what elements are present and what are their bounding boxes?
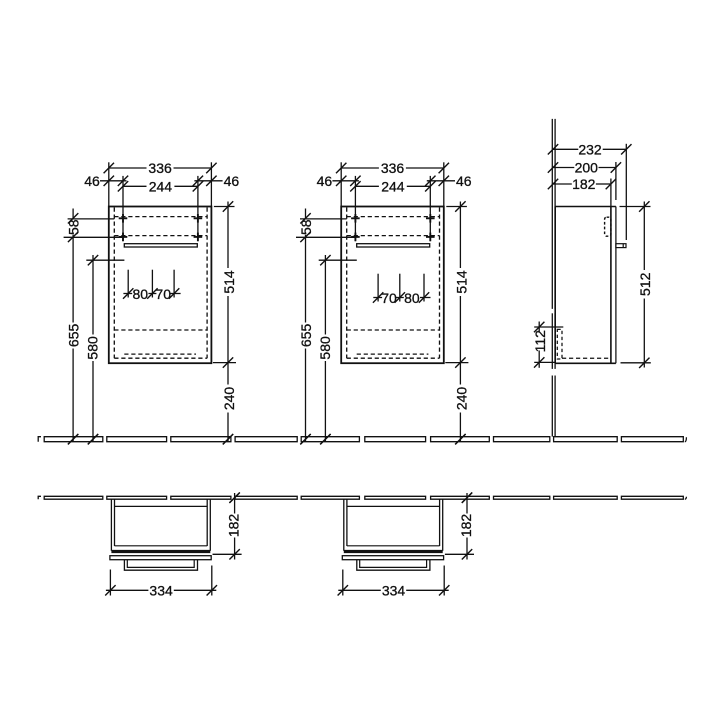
svg-text:655: 655 [66, 324, 82, 348]
svg-text:46: 46 [456, 173, 472, 189]
svg-text:70: 70 [381, 290, 397, 306]
svg-text:182: 182 [226, 514, 242, 538]
svg-text:46: 46 [317, 173, 333, 189]
svg-text:240: 240 [221, 387, 237, 411]
svg-text:514: 514 [453, 270, 469, 294]
svg-text:244: 244 [149, 178, 173, 194]
svg-text:58: 58 [298, 219, 314, 235]
svg-text:514: 514 [221, 270, 237, 294]
svg-text:655: 655 [298, 324, 314, 348]
svg-text:200: 200 [575, 160, 599, 176]
svg-text:80: 80 [404, 290, 420, 306]
svg-text:334: 334 [149, 582, 173, 598]
svg-text:334: 334 [382, 582, 406, 598]
svg-text:46: 46 [224, 173, 240, 189]
svg-text:46: 46 [84, 173, 100, 189]
svg-text:580: 580 [317, 336, 333, 360]
svg-text:58: 58 [66, 219, 82, 235]
svg-text:182: 182 [458, 514, 474, 538]
svg-text:232: 232 [578, 141, 602, 157]
svg-text:512: 512 [637, 272, 653, 296]
svg-text:244: 244 [381, 178, 405, 194]
svg-text:112: 112 [532, 330, 548, 353]
svg-text:336: 336 [148, 160, 172, 176]
svg-text:240: 240 [453, 387, 469, 411]
svg-text:80: 80 [133, 286, 149, 302]
svg-text:580: 580 [85, 336, 101, 360]
svg-text:70: 70 [155, 286, 171, 302]
svg-text:336: 336 [381, 160, 405, 176]
svg-text:182: 182 [572, 176, 596, 192]
